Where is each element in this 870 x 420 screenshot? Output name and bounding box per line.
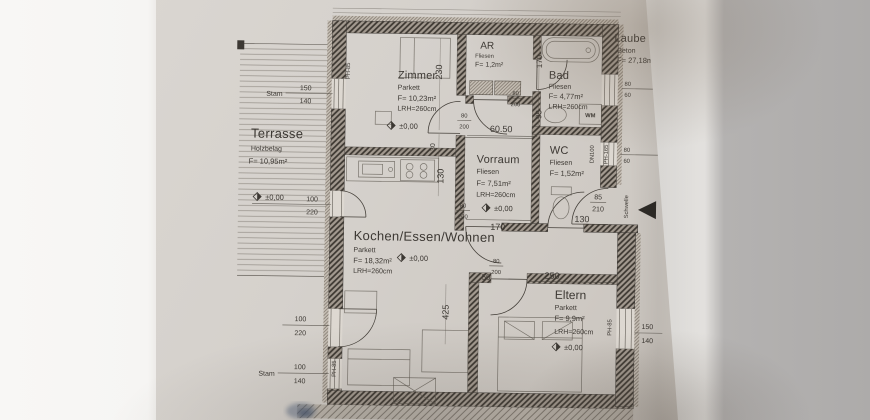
wohnen-height: LRH=260cm	[353, 268, 392, 276]
room-label-wc: WC	[550, 145, 569, 157]
floorplan-drawing: Terrasse Holzbelag F= 10,95m²	[0, 0, 870, 420]
dim-60-50: 60.50	[490, 124, 513, 134]
dim-130: 130	[435, 169, 445, 184]
dim-140: 140	[300, 98, 312, 105]
bad-area: F= 4,77m²	[549, 92, 584, 101]
dim-100: 100	[295, 316, 307, 323]
door-left-terrasse-opening	[330, 191, 344, 217]
label-ph165: PH-165	[604, 145, 610, 165]
dim-250: 250	[545, 271, 560, 281]
wall-right-upper	[601, 105, 618, 142]
wohnen-level: ±0,00	[409, 254, 428, 263]
room-label-ar: AR	[480, 41, 494, 52]
ar-finish: Fliesen	[475, 54, 494, 60]
dim-stam-bottom: Stam	[258, 371, 275, 378]
terrasse-post	[237, 40, 244, 49]
dim-220: 220	[294, 330, 306, 337]
faucet	[389, 167, 393, 171]
laube-finish: Beton	[617, 48, 635, 55]
room-label-zimmer: Zimmer	[398, 70, 437, 83]
wohnen-area: F= 18,32m²	[353, 256, 392, 266]
dim-80: 80	[461, 113, 468, 119]
dim-200: 200	[511, 102, 521, 108]
eltern-level: ±0,00	[564, 343, 583, 352]
roof-line	[333, 8, 621, 12]
eltern-height: LRH=260cm	[554, 329, 593, 337]
dim-stam-top: Stam	[266, 91, 283, 98]
dim-100: 100	[294, 364, 306, 371]
room-label-terrasse: Terrasse	[251, 125, 303, 141]
dim-60: 60	[624, 93, 631, 99]
dim-170: 170	[490, 222, 505, 232]
wall-left	[332, 21, 347, 79]
wall-left	[328, 347, 342, 359]
dim-100: 100	[306, 196, 318, 203]
window-bad-right	[601, 74, 617, 105]
door-left-lower	[338, 309, 377, 348]
wall-zimmer-bottom	[345, 147, 465, 157]
kitchen-sink	[358, 161, 394, 178]
dim-80: 80	[460, 203, 467, 209]
dim-80: 80	[512, 91, 519, 97]
dim-140: 140	[294, 378, 306, 385]
room-label-eltern: Eltern	[555, 288, 587, 302]
door-eltern	[491, 279, 527, 315]
toilet	[551, 187, 571, 219]
bad-finish: Fliesen	[549, 84, 572, 91]
vorraum-finish: Fliesen	[476, 169, 499, 176]
label-ph85: PH-85	[332, 360, 338, 377]
dim-150: 150	[641, 324, 653, 331]
terrasse-finish: Holzbelag	[251, 145, 282, 152]
wall-right-eltern	[615, 349, 634, 407]
label-ph85: PH-85	[607, 319, 613, 336]
wc-finish: Fliesen	[550, 160, 573, 167]
dim-200: 200	[491, 270, 501, 276]
dim-425: 425	[440, 305, 450, 320]
label-dn100: DN100	[590, 145, 596, 163]
zimmer-area: F= 10,23m²	[397, 94, 436, 104]
wall-hall-bottom	[502, 223, 548, 232]
wall-right-upper	[600, 165, 616, 187]
washing-machine-label: WM	[585, 113, 596, 119]
dim-30: 30	[430, 143, 437, 151]
vorraum-area: F= 7,51m²	[476, 179, 511, 188]
bad-height: LRH=260cm	[548, 104, 587, 112]
room-label-bad: Bad	[549, 70, 569, 82]
zimmer-finish: Parkett	[398, 85, 420, 92]
window-eltern-right	[616, 309, 635, 349]
dim-170: 170	[535, 54, 544, 68]
level-marker-eltern	[552, 343, 560, 351]
entrance-marker-triangle	[638, 201, 656, 219]
label-ph85: PH-85	[346, 63, 352, 80]
ink-smudge-dark	[298, 409, 312, 417]
level-marker-vorraum	[482, 204, 490, 212]
wohnen-finish: Parkett	[353, 247, 375, 254]
wall-bad-wc	[532, 126, 601, 135]
dim-60: 60	[623, 159, 630, 165]
room-label-wohnen: Kochen/Essen/Wohnen	[354, 228, 496, 245]
terrasse-area: Terrasse Holzbelag F= 10,95m²	[234, 40, 332, 276]
ar-area: F= 1,2m²	[475, 62, 504, 69]
nightstand	[375, 111, 391, 124]
dim-220: 220	[306, 209, 318, 216]
sideboard	[345, 291, 377, 313]
eltern-finish: Parkett	[555, 305, 577, 312]
terrasse-level: ±0,00	[265, 193, 284, 202]
kitchen-counter	[346, 157, 438, 182]
label-schwelle: Schwelle	[624, 195, 630, 218]
exterior-walls	[327, 21, 640, 409]
vorraum-height: LRH=260cm	[476, 192, 515, 200]
door-left-lower-opening	[328, 309, 343, 347]
wall-right-eltern	[617, 233, 636, 309]
stove	[400, 160, 434, 181]
dim-130: 130	[574, 214, 589, 224]
room-label-laube: Laube	[614, 33, 646, 45]
roof-line	[333, 13, 621, 17]
dim-85: 85	[594, 194, 602, 201]
wall-zimmer-right	[457, 34, 467, 95]
dim-95: 95	[534, 109, 543, 119]
zimmer-height: LRH=260cm	[397, 106, 436, 114]
wall-left	[329, 217, 344, 309]
dim-80: 80	[493, 259, 500, 265]
wall-eltern-top	[527, 273, 617, 284]
laube-area: F= 27,18m²	[617, 56, 656, 66]
sofa	[348, 349, 410, 386]
vorraum-niche-line	[465, 137, 532, 138]
dim-210: 210	[592, 206, 604, 213]
eltern-area: F= 9,9m²	[554, 314, 585, 323]
dim-230: 230	[434, 65, 444, 80]
vorraum-level: ±0,00	[494, 204, 513, 213]
wall-eltern-left	[467, 283, 479, 393]
dim-140: 140	[641, 338, 653, 345]
dim-50: 50	[482, 273, 492, 282]
wall-ar-bottom	[465, 95, 473, 103]
dim-200: 200	[459, 124, 469, 130]
room-label-vorraum: Vorraum	[477, 154, 520, 167]
window-left-top	[331, 79, 345, 109]
wc-area: F= 1,52m²	[549, 169, 584, 178]
wall-left	[330, 109, 345, 191]
dim-80: 80	[624, 82, 631, 88]
floorplan-photo: Terrasse Holzbelag F= 10,95m²	[0, 0, 870, 420]
dim-80: 80	[624, 148, 631, 154]
zimmer-level: ±0,00	[399, 122, 418, 131]
wall-hall-bottom	[584, 224, 638, 233]
bathtub	[542, 38, 599, 63]
dim-150: 150	[300, 85, 312, 92]
level-marker-wohnen	[397, 254, 405, 262]
terrasse-area-value: F= 10,95m²	[249, 156, 288, 166]
